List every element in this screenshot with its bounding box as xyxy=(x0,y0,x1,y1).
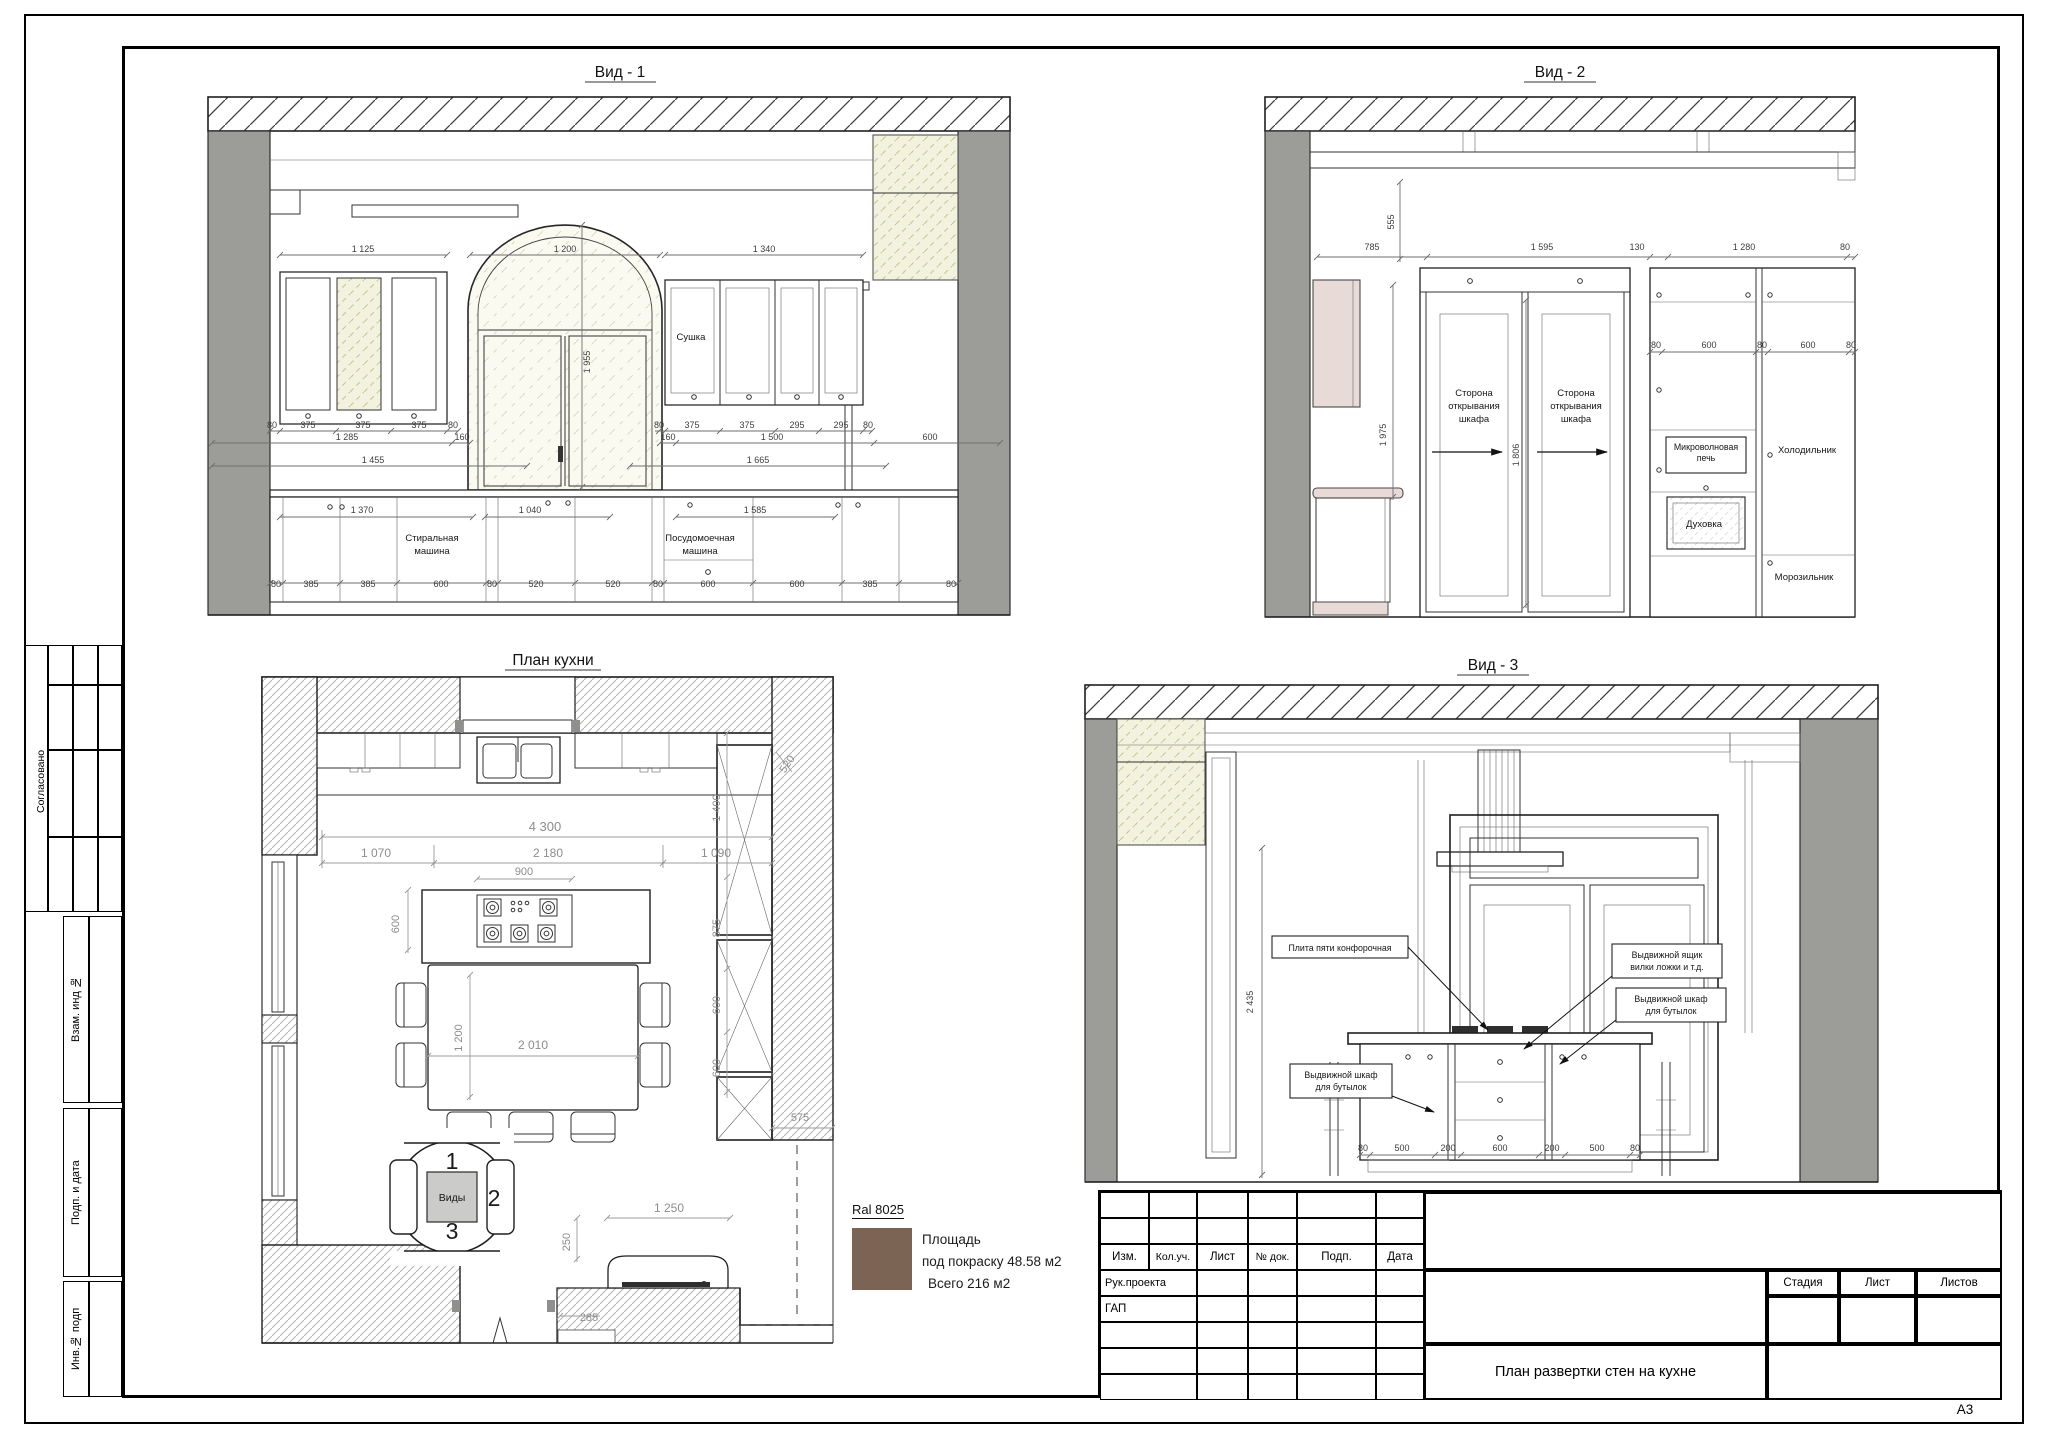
annotation-text: 1 595 xyxy=(1531,242,1554,252)
stamp-cell xyxy=(1376,1322,1424,1348)
annotation-text: 385 xyxy=(862,579,877,589)
stamp-header-koluch: Кол.уч. xyxy=(1149,1244,1197,1270)
sidebar-inv-label: Инв.№ подп xyxy=(70,1308,82,1370)
stamp-header-label: Дата xyxy=(1387,1251,1412,1263)
agreed-cell xyxy=(73,685,98,750)
annotation-text: 520 xyxy=(528,579,543,589)
annotation-text: 1 200 xyxy=(554,244,577,254)
agreed-cell xyxy=(48,837,73,912)
annotation-text: 2 xyxy=(488,1185,501,1211)
stamp-header-label: Изм. xyxy=(1112,1251,1137,1263)
annotation-text: 600 xyxy=(433,579,448,589)
stamp-cell xyxy=(1248,1322,1297,1348)
annotation-text: 900 xyxy=(515,866,533,878)
stamp-cell xyxy=(1297,1322,1376,1348)
stamp-cell xyxy=(1297,1296,1376,1322)
agreed-cell xyxy=(98,837,122,912)
stamp-cell xyxy=(1100,1348,1197,1374)
sidebar-inv-box: Инв.№ подп xyxy=(63,1281,122,1397)
annotation-text: 4 300 xyxy=(529,819,562,834)
sidebar-vzam-empty-cell xyxy=(89,916,122,1103)
annotation-text: 200 xyxy=(1440,1143,1455,1153)
stamp-stadia-header: Стадия xyxy=(1767,1270,1839,1296)
plan-dashed-lines xyxy=(740,1145,833,1325)
stamp-cell xyxy=(1197,1192,1248,1218)
annotation-text: 520 xyxy=(605,579,620,589)
annotation-text: 80 xyxy=(1840,242,1850,252)
stamp-cell xyxy=(1100,1322,1197,1348)
plan-tall-cabinets xyxy=(717,745,772,1140)
stamp-cell xyxy=(1197,1270,1248,1296)
sidebar-vzam-label: Взам. инд № xyxy=(70,977,82,1043)
annotation-text: 375 xyxy=(300,420,315,430)
view3-elevation: Вид - 3 xyxy=(1085,657,1878,1182)
annotation-text: 375 xyxy=(684,420,699,430)
sidebar-vzam-label-cell: Взам. инд № xyxy=(63,916,89,1103)
stamp-header-label: Лист xyxy=(1210,1251,1235,1263)
stamp-header-label: Лист xyxy=(1865,1277,1890,1289)
view2-title: Вид - 2 xyxy=(1535,64,1585,81)
view1-title: Вид - 1 xyxy=(595,64,645,81)
annotation-text: 80 xyxy=(946,579,956,589)
stamp-mid-cell xyxy=(1424,1270,1767,1344)
annotation-text: 1 340 xyxy=(753,244,776,254)
stamp-cell xyxy=(1376,1192,1424,1218)
annotation-text: 160 xyxy=(454,432,469,442)
annotation-text: 600 xyxy=(1492,1143,1507,1153)
stamp-cell xyxy=(1197,1348,1248,1374)
view1-elevation: Вид - 1 xyxy=(208,64,1010,615)
stamp-doc-title-cell: План развертки стен на кухне xyxy=(1424,1344,1767,1400)
annotation-text: 1 280 xyxy=(1733,242,1756,252)
annotation-text: 1 975 xyxy=(1378,424,1388,447)
stamp-cell xyxy=(1248,1348,1297,1374)
annotation-text: 1 400 xyxy=(711,794,723,822)
annotation-text: 375 xyxy=(355,420,370,430)
stamp-top-wide-cell xyxy=(1424,1192,2002,1270)
stamp-cell xyxy=(1248,1296,1297,1322)
sidebar-signdate-label-cell: Подп. и дата xyxy=(63,1108,89,1277)
kitchen-plan: План кухни xyxy=(262,652,835,1343)
view3-title: Вид - 3 xyxy=(1468,657,1518,674)
annotation-text: 80 xyxy=(1630,1143,1640,1153)
stamp-header-label: Подп. xyxy=(1321,1251,1352,1263)
annotation-text: 600 xyxy=(711,996,723,1014)
annotation-text: 3 xyxy=(446,1218,459,1244)
annotation-text: 500 xyxy=(1589,1143,1604,1153)
annotation-text: 1 665 xyxy=(747,455,770,465)
annotation-text: 2 435 xyxy=(1245,991,1255,1014)
annotation-text: Виды xyxy=(439,1192,466,1204)
plan-title: План кухни xyxy=(512,652,593,669)
annotation-text: 80 xyxy=(654,420,664,430)
stamp-row-label: ГАП xyxy=(1105,1303,1126,1315)
annotation-text: 875 xyxy=(711,919,723,937)
stamp-cell xyxy=(1100,1374,1197,1400)
agreed-cell xyxy=(98,685,122,750)
annotation-text: 2 010 xyxy=(518,1038,548,1052)
stamp-row-ruk: Рук.проекта xyxy=(1100,1270,1197,1296)
stamp-header-list: Лист xyxy=(1197,1244,1248,1270)
annotation-text: 80 xyxy=(271,579,281,589)
annotation-text: 600 xyxy=(789,579,804,589)
annotation-text: 1 500 xyxy=(761,432,784,442)
stamp-cell xyxy=(1376,1270,1424,1296)
agreed-cell xyxy=(73,645,98,685)
paint-area-line2: под покраску 48.58 м2 xyxy=(922,1254,1062,1269)
plan-upper-cabinets xyxy=(317,733,772,795)
stamp-cell xyxy=(1376,1296,1424,1322)
stamp-cell xyxy=(1197,1322,1248,1348)
annotation-text: 385 xyxy=(303,579,318,589)
annotation-text: 600 xyxy=(700,579,715,589)
annotation-text: 130 xyxy=(1629,242,1644,252)
annotation-text: 600 xyxy=(922,432,937,442)
annotation-text: 1 070 xyxy=(361,846,391,860)
ral-swatch xyxy=(852,1228,912,1290)
annotation-text: 200 xyxy=(1544,1143,1559,1153)
annotation-text: 375 xyxy=(739,420,754,430)
stamp-cell xyxy=(1100,1192,1149,1218)
stamp-cell xyxy=(1376,1374,1424,1400)
stamp-cell xyxy=(1248,1374,1297,1400)
annotation-text: 80 xyxy=(1651,340,1661,350)
sidebar-vzam-box: Взам. инд № xyxy=(63,916,122,1103)
stamp-cell xyxy=(1297,1374,1376,1400)
annotation-text: 295 xyxy=(789,420,804,430)
view1-soffit xyxy=(270,160,873,217)
view2-wardrobe-doors xyxy=(1420,268,1630,617)
stamp-cell xyxy=(1197,1374,1248,1400)
stamp-cell xyxy=(1197,1218,1248,1244)
stamp-header-dok: № док. xyxy=(1248,1244,1297,1270)
stamp-header-podp: Подп. xyxy=(1297,1244,1376,1270)
agreed-cell xyxy=(48,685,73,750)
view3-island xyxy=(1324,1026,1676,1176)
annotation-text: 2 180 xyxy=(533,846,563,860)
sidebar-agreed-table: Согласовано xyxy=(25,645,122,912)
stamp-cell xyxy=(1149,1218,1197,1244)
stamp-bottom-right-cell xyxy=(1767,1344,2002,1400)
annotation-text: 160 xyxy=(660,432,675,442)
stamp-listov-value xyxy=(1916,1296,2002,1344)
sidebar-agreed-label-cell: Согласовано xyxy=(25,645,48,912)
annotation-text: 500 xyxy=(1394,1143,1409,1153)
sidebar-inv-empty-cell xyxy=(89,1281,122,1397)
stamp-header-data: Дата xyxy=(1376,1244,1424,1270)
view2-elevation: Вид - 2 xyxy=(1265,64,1858,617)
annotation-text: 285 xyxy=(580,1312,598,1324)
stamp-header-label: № док. xyxy=(1256,1251,1290,1263)
stamp-stadia-value xyxy=(1767,1296,1839,1344)
paint-area-total: Всего 216 м2 xyxy=(928,1276,1010,1291)
view2-left-pink-cabinet xyxy=(1313,280,1360,407)
annotation-text: 80 xyxy=(1846,340,1856,350)
view3-hood xyxy=(1437,750,1563,872)
agreed-cell xyxy=(98,750,122,837)
view1-arched-window xyxy=(468,225,662,490)
stamp-cell xyxy=(1297,1348,1376,1374)
annotation-text: Плита пяти конфорочная xyxy=(1288,943,1391,953)
annotation-text: 575 xyxy=(791,1112,809,1124)
annotation-text: 1 125 xyxy=(352,244,375,254)
plan-sink xyxy=(608,1256,728,1288)
annotation-text: 80 xyxy=(1358,1143,1368,1153)
annotation-text: 785 xyxy=(1364,242,1379,252)
annotation-text: 600 xyxy=(1800,340,1815,350)
sidebar-signdate-label: Подп. и дата xyxy=(70,1160,82,1225)
stamp-cell xyxy=(1297,1192,1376,1218)
annotation-text: 1 806 xyxy=(1511,444,1521,467)
agreed-cell xyxy=(48,645,73,685)
paint-area-line1: Площадь xyxy=(922,1232,981,1247)
annotation-text: 80 xyxy=(863,420,873,430)
sidebar-signdate-empty-cell xyxy=(89,1108,122,1277)
view2-left-counter xyxy=(1313,488,1403,615)
stamp-cell xyxy=(1248,1218,1297,1244)
title-block: Изм. Кол.уч. Лист № док. Подп. Дата Рук.… xyxy=(1098,1190,2002,1398)
stamp-cell xyxy=(1100,1218,1149,1244)
stamp-cell xyxy=(1149,1192,1197,1218)
annotation-text: 1 250 xyxy=(654,1201,684,1215)
stamp-cell xyxy=(1197,1296,1248,1322)
stamp-list-value xyxy=(1839,1296,1916,1344)
agreed-cell xyxy=(98,645,122,685)
stamp-cell xyxy=(1297,1270,1376,1296)
doc-title: План развертки стен на кухне xyxy=(1495,1364,1696,1380)
stamp-cell xyxy=(1248,1270,1297,1296)
annotation-text: 1 585 xyxy=(744,505,767,515)
annotation-text: Сушка xyxy=(677,332,707,343)
annotation-text: 1 040 xyxy=(519,505,542,515)
annotation-text: 250 xyxy=(561,1233,573,1251)
stamp-cell xyxy=(1376,1348,1424,1374)
annotation-text: 600 xyxy=(390,915,402,933)
view3-window-left xyxy=(1206,752,1236,1158)
annotation-text: 1 285 xyxy=(336,432,359,442)
plan-island xyxy=(422,890,650,963)
annotation-text: 555 xyxy=(1386,214,1396,229)
annotation-text: Духовка xyxy=(1686,519,1723,530)
annotation-text: 1 200 xyxy=(453,1024,465,1052)
annotation-text: 600 xyxy=(711,1059,723,1077)
view2-soffit xyxy=(1310,131,1855,180)
plan-dining-table xyxy=(396,965,670,1142)
view1-left-upper-cabinets xyxy=(280,272,447,424)
annotation-text: 80 xyxy=(1757,340,1767,350)
door-swing-mark xyxy=(493,1318,507,1343)
annotation-text: 1 455 xyxy=(362,455,385,465)
annotation-text: Холодильник xyxy=(1778,445,1837,456)
annotation-text: 80 xyxy=(487,579,497,589)
ral-label: Ral 8025 xyxy=(852,1202,904,1219)
sidebar-signdate-box: Подп. и дата xyxy=(63,1108,122,1277)
annotation-text: 295 xyxy=(833,420,848,430)
stamp-cell xyxy=(1297,1218,1376,1244)
agreed-cell xyxy=(48,750,73,837)
stamp-header-izm: Изм. xyxy=(1100,1244,1149,1270)
stamp-row-gap: ГАП xyxy=(1100,1296,1197,1322)
sheet-format-label: А3 xyxy=(1930,1402,2000,1417)
annotation-text: 1 090 xyxy=(701,846,731,860)
sidebar-inv-label-cell: Инв.№ подп xyxy=(63,1281,89,1397)
stamp-cell xyxy=(1248,1192,1297,1218)
stamp-row-label: Рук.проекта xyxy=(1105,1277,1166,1289)
agreed-cell xyxy=(73,837,98,912)
stamp-header-label: Кол.уч. xyxy=(1156,1251,1190,1263)
agreed-cell xyxy=(73,750,98,837)
annotation-text: 600 xyxy=(1701,340,1716,350)
annotation-text: 80 xyxy=(448,420,458,430)
annotation-text: 80 xyxy=(653,579,663,589)
annotation-text: Морозильник xyxy=(1775,572,1834,583)
sheet: Вид - 1 xyxy=(0,0,2048,1448)
stamp-header-label: Стадия xyxy=(1783,1277,1822,1289)
sidebar-agreed-label: Согласовано xyxy=(35,750,47,813)
annotation-text: 1 955 xyxy=(582,351,592,374)
stamp-list-header: Лист xyxy=(1839,1270,1916,1296)
annotation-text: 375 xyxy=(411,420,426,430)
annotation-text: 385 xyxy=(360,579,375,589)
annotation-text: 1 370 xyxy=(351,505,374,515)
stamp-header-label: Листов xyxy=(1940,1277,1977,1289)
annotation-text: 80 xyxy=(267,420,277,430)
stamp-cell xyxy=(1376,1218,1424,1244)
stamp-listov-header: Листов xyxy=(1916,1270,2002,1296)
annotation-text: 1 xyxy=(446,1148,459,1174)
